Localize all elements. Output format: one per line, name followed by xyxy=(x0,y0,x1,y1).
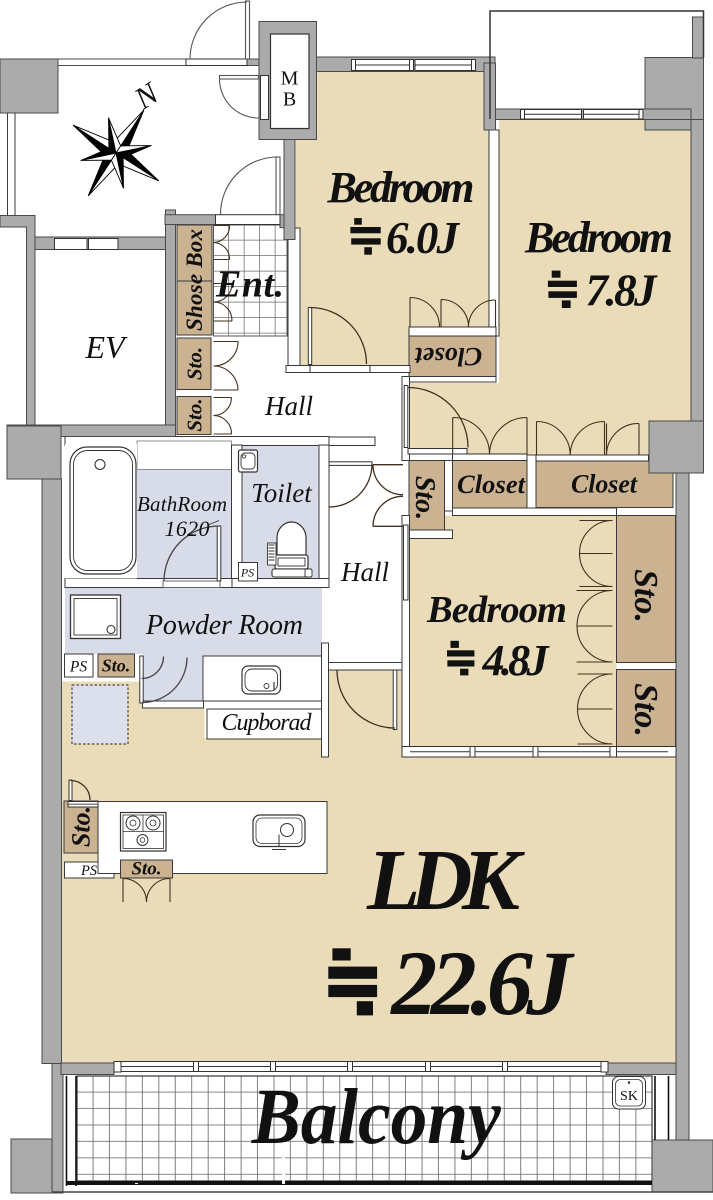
svg-text:Closet: Closet xyxy=(457,469,527,499)
svg-text:Hall: Hall xyxy=(264,391,313,421)
svg-text:7.8J: 7.8J xyxy=(586,266,659,316)
svg-text:M: M xyxy=(281,68,299,90)
svg-text:Bedroom: Bedroom xyxy=(426,589,567,631)
svg-text:BathRoom: BathRoom xyxy=(137,492,227,516)
svg-text:22.6J: 22.6J xyxy=(389,932,575,1034)
svg-text:6.0J: 6.0J xyxy=(386,213,461,263)
svg-text:EV: EV xyxy=(84,329,128,365)
svg-text:B: B xyxy=(283,89,296,111)
svg-text:Sto.: Sto. xyxy=(409,476,440,520)
svg-text:PS: PS xyxy=(69,659,87,676)
svg-text:Sto.: Sto. xyxy=(183,398,207,431)
svg-text:SK: SK xyxy=(620,1089,638,1104)
svg-text:Balcony: Balcony xyxy=(251,1074,502,1161)
svg-text:Closet: Closet xyxy=(415,342,483,371)
svg-text:Bedroom: Bedroom xyxy=(327,163,475,212)
svg-text:Bedroom: Bedroom xyxy=(524,213,673,262)
svg-text:Sto.: Sto. xyxy=(131,859,161,880)
svg-text:Hall: Hall xyxy=(340,557,389,587)
svg-text:4.8J: 4.8J xyxy=(482,636,551,685)
svg-text:Sto.: Sto. xyxy=(627,683,664,737)
svg-text:Sto.: Sto. xyxy=(183,347,207,380)
svg-text:Closet: Closet xyxy=(571,470,638,499)
svg-text:1620: 1620 xyxy=(165,516,210,541)
svg-text:PS: PS xyxy=(80,863,98,879)
svg-text:PS: PS xyxy=(240,566,254,580)
svg-text:LDK: LDK xyxy=(366,831,525,928)
svg-text:Ent.: Ent. xyxy=(215,264,284,306)
svg-text:Cupborad: Cupborad xyxy=(222,710,313,736)
svg-text:Powder Room: Powder Room xyxy=(145,610,303,641)
svg-text:Sto.: Sto. xyxy=(67,806,96,847)
svg-text:Toilet: Toilet xyxy=(251,478,313,508)
svg-text:Shose Box: Shose Box xyxy=(182,229,207,331)
svg-text:Sto.: Sto. xyxy=(102,656,131,676)
svg-text:Sto.: Sto. xyxy=(627,569,664,623)
